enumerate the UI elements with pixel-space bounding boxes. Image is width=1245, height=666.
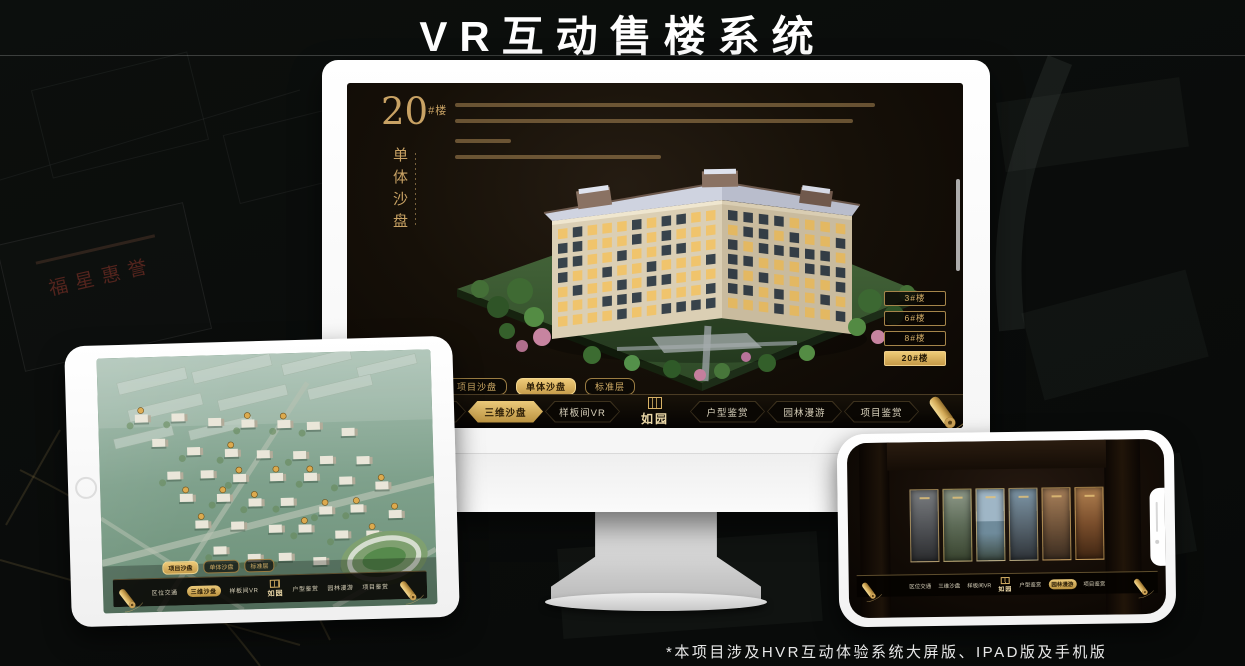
plaque-brand-text: 福星惠誉 xyxy=(6,241,197,310)
brand-logo: 如园 xyxy=(998,576,1012,592)
title-divider xyxy=(0,55,1245,56)
scroll-icon[interactable] xyxy=(399,580,417,600)
description-line xyxy=(455,119,853,123)
floor-button-3[interactable]: 3#楼 xyxy=(884,291,946,306)
nav-item-3d-sandbox[interactable]: 三维沙盘 xyxy=(186,585,220,597)
seal-icon xyxy=(270,580,280,588)
tab-standard-floor[interactable]: 标准层 xyxy=(244,559,274,573)
nav-item-location[interactable]: 区位交通 xyxy=(151,587,177,597)
nav-item-showroom-vr[interactable]: 样板间VR xyxy=(967,581,991,589)
block-number-suffix: #楼 xyxy=(428,105,447,117)
seal-icon xyxy=(648,397,662,409)
monitor-base xyxy=(545,593,767,611)
scroll-icon[interactable] xyxy=(928,395,956,427)
tab-single-building[interactable]: 单体沙盘 xyxy=(203,560,239,574)
nav-item-garden-roam[interactable]: 园林漫游 xyxy=(327,582,353,592)
floor-selector: 3#楼 6#楼 8#楼 20#楼 xyxy=(884,291,946,366)
nav-item-project-gallery[interactable]: 项目鉴赏 xyxy=(1083,579,1105,587)
tablet-screen: 项目沙盘 单体沙盘 标准层 区位交通 三维沙盘 样板间VR 如园 户型鉴赏 园林… xyxy=(97,349,438,613)
building-3d-render[interactable] xyxy=(402,141,942,396)
nav-item-location[interactable]: 区位交通 xyxy=(909,582,931,590)
phone-nav-bar: 区位交通 三维沙盘 样板间VR 如园 户型鉴赏 园林漫游 项目鉴赏 xyxy=(857,571,1158,597)
phone-notch xyxy=(1149,487,1165,565)
stage: 福星惠誉 VR互动售楼系统 20#楼 单体沙盘 xyxy=(0,0,1245,666)
scroll-icon[interactable] xyxy=(1133,578,1148,595)
scene-card[interactable] xyxy=(975,488,1005,561)
tab-single-building[interactable]: 单体沙盘 xyxy=(516,378,576,395)
nav-item-floorplans[interactable]: 户型鉴赏 xyxy=(1019,580,1041,588)
nav-item-floorplans[interactable]: 户型鉴赏 xyxy=(292,583,318,593)
view-tabs: 项目沙盘 单体沙盘 标准层 xyxy=(447,378,635,395)
scene-card[interactable] xyxy=(1074,487,1104,560)
scroll-icon[interactable] xyxy=(861,582,876,599)
nav-item-project-gallery[interactable]: 项目鉴赏 xyxy=(362,582,388,592)
footnote: *本项目涉及HVR互动体验系统大屏版、IPAD版及手机版 xyxy=(666,641,1107,662)
nav-item-3d-sandbox[interactable]: 三维沙盘 xyxy=(468,401,543,423)
nav-item-garden-roam[interactable]: 园林漫游 xyxy=(1048,579,1076,589)
scroll-icon[interactable] xyxy=(118,588,136,608)
screen-scrollbar[interactable] xyxy=(956,179,960,271)
nav-item-floorplans[interactable]: 户型鉴赏 xyxy=(690,401,765,423)
tablet-device: 项目沙盘 单体沙盘 标准层 区位交通 三维沙盘 样板间VR 如园 户型鉴赏 园林… xyxy=(64,336,460,628)
scene-card[interactable] xyxy=(1041,487,1071,560)
nav-item-garden-roam[interactable]: 园林漫游 xyxy=(767,401,842,423)
camera-dot xyxy=(1155,539,1159,543)
scene-card[interactable] xyxy=(909,489,939,562)
nav-item-project-gallery[interactable]: 项目鉴赏 xyxy=(844,401,919,423)
scene-card[interactable] xyxy=(1008,488,1038,561)
tab-project-sandbox[interactable]: 项目沙盘 xyxy=(162,561,198,575)
scene-gallery xyxy=(909,487,1104,563)
nav-item-showroom-vr[interactable]: 样板间VR xyxy=(229,585,258,595)
block-headline: 20#楼 xyxy=(381,93,447,131)
nav-item-3d-sandbox[interactable]: 三维沙盘 xyxy=(938,581,960,589)
interior-lintel xyxy=(887,440,1106,471)
floor-button-8[interactable]: 8#楼 xyxy=(884,331,946,346)
brand-logo: 如园 xyxy=(623,397,687,427)
scene-card[interactable] xyxy=(942,488,972,561)
phone-screen: 区位交通 三维沙盘 样板间VR 如园 户型鉴赏 园林漫游 项目鉴赏 xyxy=(847,439,1166,618)
block-number: 20 xyxy=(381,90,428,133)
tab-project-sandbox[interactable]: 项目沙盘 xyxy=(447,378,507,395)
nav-item-showroom-vr[interactable]: 样板间VR xyxy=(545,401,620,423)
tab-standard-floor[interactable]: 标准层 xyxy=(585,378,635,395)
floor-button-6[interactable]: 6#楼 xyxy=(884,311,946,326)
brand-logo: 如园 xyxy=(267,579,284,598)
floor-button-20[interactable]: 20#楼 xyxy=(884,351,946,366)
home-button[interactable] xyxy=(75,476,98,499)
phone-device: 区位交通 三维沙盘 样板间VR 如园 户型鉴赏 园林漫游 项目鉴赏 xyxy=(837,430,1177,628)
description-line xyxy=(455,103,875,107)
speaker-slot xyxy=(1156,501,1158,531)
